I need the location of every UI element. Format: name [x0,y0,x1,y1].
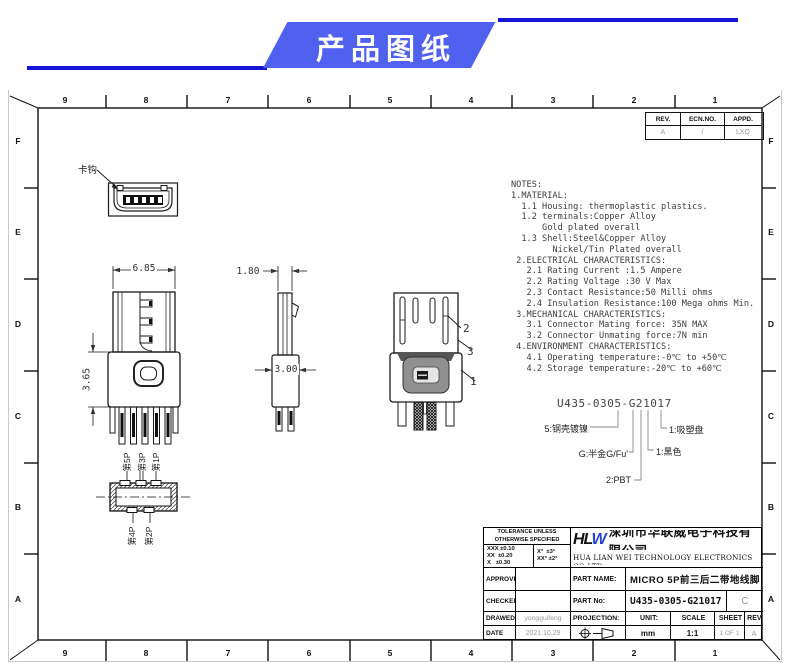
pin-label-3p: 第3P [136,449,148,475]
part-code-plating-label: G:半金G/Fu' [574,447,628,460]
pin-label-1p: 第1P [150,449,162,475]
zone-col-top: 8 [138,95,154,105]
ecn-header: ECN.NO. [681,113,725,126]
company-name-cn: 深圳市华联威电子科技有限公司 [609,530,761,550]
pin-label-5p: 第5P [121,449,133,475]
callout-2: 2 [463,322,470,335]
part-code-color-label: 1:黑色 [656,445,682,458]
zone-row-right: D [763,319,779,329]
part-code-shell-label: 5:钢壳镀镍 [538,422,588,435]
callout-3: 3 [467,345,474,358]
drawed-value: yongguifeng [516,612,571,626]
sheet-value: 1 OF 1 [715,626,745,640]
dim-height-main: 3.65 [82,363,93,397]
rev-value: A [745,626,763,640]
company-name-en: HUA LIAN WEI TECHNOLOGY ELECTRONICS CO:L… [573,553,761,565]
scale-value: 1:1 [671,626,715,640]
sheet-label: SHEET [715,612,745,626]
tolerance-box: TOLERANCE UNLESS OTHERWISE SPECIFIED XXX… [484,528,571,568]
tolerance-linear: XXX ±0.10 XX ±0.20 X ±0.30 [484,545,534,567]
ecn-value: / [681,126,725,139]
zone-row-right: B [763,502,779,512]
zone-col-top: 7 [220,95,236,105]
part-no-value: U435-0305-G21017 [626,591,727,612]
third-angle-projection-icon [578,627,618,640]
zone-col-bottom: 2 [626,648,642,658]
part-name-label: PART NAME: [571,568,626,591]
zone-row-right: E [763,227,779,237]
part-no-label: PART No: [571,591,626,612]
scale-label: SCALE [671,612,715,626]
logo-w: W [591,531,605,548]
drawed-label: DRAWED [484,612,516,626]
date-label: DATE [484,626,516,640]
zone-row-left: F [10,136,26,146]
zone-col-bottom: 5 [382,648,398,658]
projection-label: PROJECTION: [571,612,626,626]
unit-label: UNIT: [626,612,671,626]
zone-row-left: E [10,227,26,237]
date-value: 2021.10.29 [516,626,571,640]
side-view [255,266,316,431]
zone-col-top: 5 [382,95,398,105]
notes-block: NOTES: 1.MATERIAL: 1.1 Housing: thermopl… [511,180,754,374]
zone-col-top: 9 [57,95,73,105]
zone-col-top: 1 [707,95,723,105]
part-code-packing-label: 1:吸塑盘 [669,423,704,436]
zone-row-right: F [763,136,779,146]
title-block: TOLERANCE UNLESS OTHERWISE SPECIFIED XXX… [483,527,762,640]
tolerance-angular: X° ±3° XX° ±2° [534,545,570,567]
zone-row-left: B [10,502,26,512]
zone-col-bottom: 8 [138,648,154,658]
appd-value: LXQ [725,126,761,139]
zone-row-left: A [10,594,26,604]
unit-value: mm [626,626,671,640]
checked-value [516,591,571,612]
callout-1: 1 [470,375,477,388]
product-drawing-page: 产品图纸 [0,0,790,663]
revision-table: REV. ECN.NO. APPD. A / LXQ [645,112,764,140]
part-name-value: MICRO 5P前三后二带地线脚 [626,568,763,591]
zone-col-top: 6 [301,95,317,105]
main-view [88,266,180,444]
revision-letter: C [727,591,763,612]
perspective-view [390,293,475,430]
dim-width-main: 6.85 [113,263,175,274]
approved-label: APPROVED [484,568,516,591]
dim-width-side-top: 1.80 [234,266,262,277]
zone-row-right: C [763,411,779,421]
zone-col-bottom: 1 [707,648,723,658]
part-code-material-label: 2:PBT [606,475,631,485]
zone-col-bottom: 4 [463,648,479,658]
zone-row-left: D [10,319,26,329]
zone-row-right: A [763,594,779,604]
rev-label: REV. [745,612,763,626]
bottom-view [96,471,191,523]
zone-col-bottom: 6 [301,648,317,658]
checked-label: CHECKED [484,591,516,612]
hook-label: 卡钩 [78,162,97,176]
pin-label-2p: 第2P [143,523,155,549]
zone-col-bottom: 9 [57,648,73,658]
logo-hl: HL [573,531,591,548]
zone-row-left: C [10,411,26,421]
pin-label-4p: 第4P [126,523,138,549]
dim-width-side-bottom: 3.00 [272,364,300,375]
approved-value [516,568,571,591]
rev-value: A [646,126,681,139]
projection-symbol [571,626,626,640]
zone-col-top: 2 [626,95,642,105]
rev-header: REV. [646,113,681,126]
zone-col-bottom: 7 [220,648,236,658]
zone-col-top: 3 [545,95,561,105]
appd-header: APPD. [725,113,761,126]
company-box: HLW 深圳市华联威电子科技有限公司 HUA LIAN WEI TECHNOLO… [571,528,763,568]
part-code: U435-0305-G21017 [557,397,672,410]
tolerance-header: TOLERANCE UNLESS OTHERWISE SPECIFIED [484,528,570,545]
zone-col-bottom: 3 [545,648,561,658]
company-logo: HLW [573,531,606,549]
front-view [97,170,178,216]
zone-col-top: 4 [463,95,479,105]
